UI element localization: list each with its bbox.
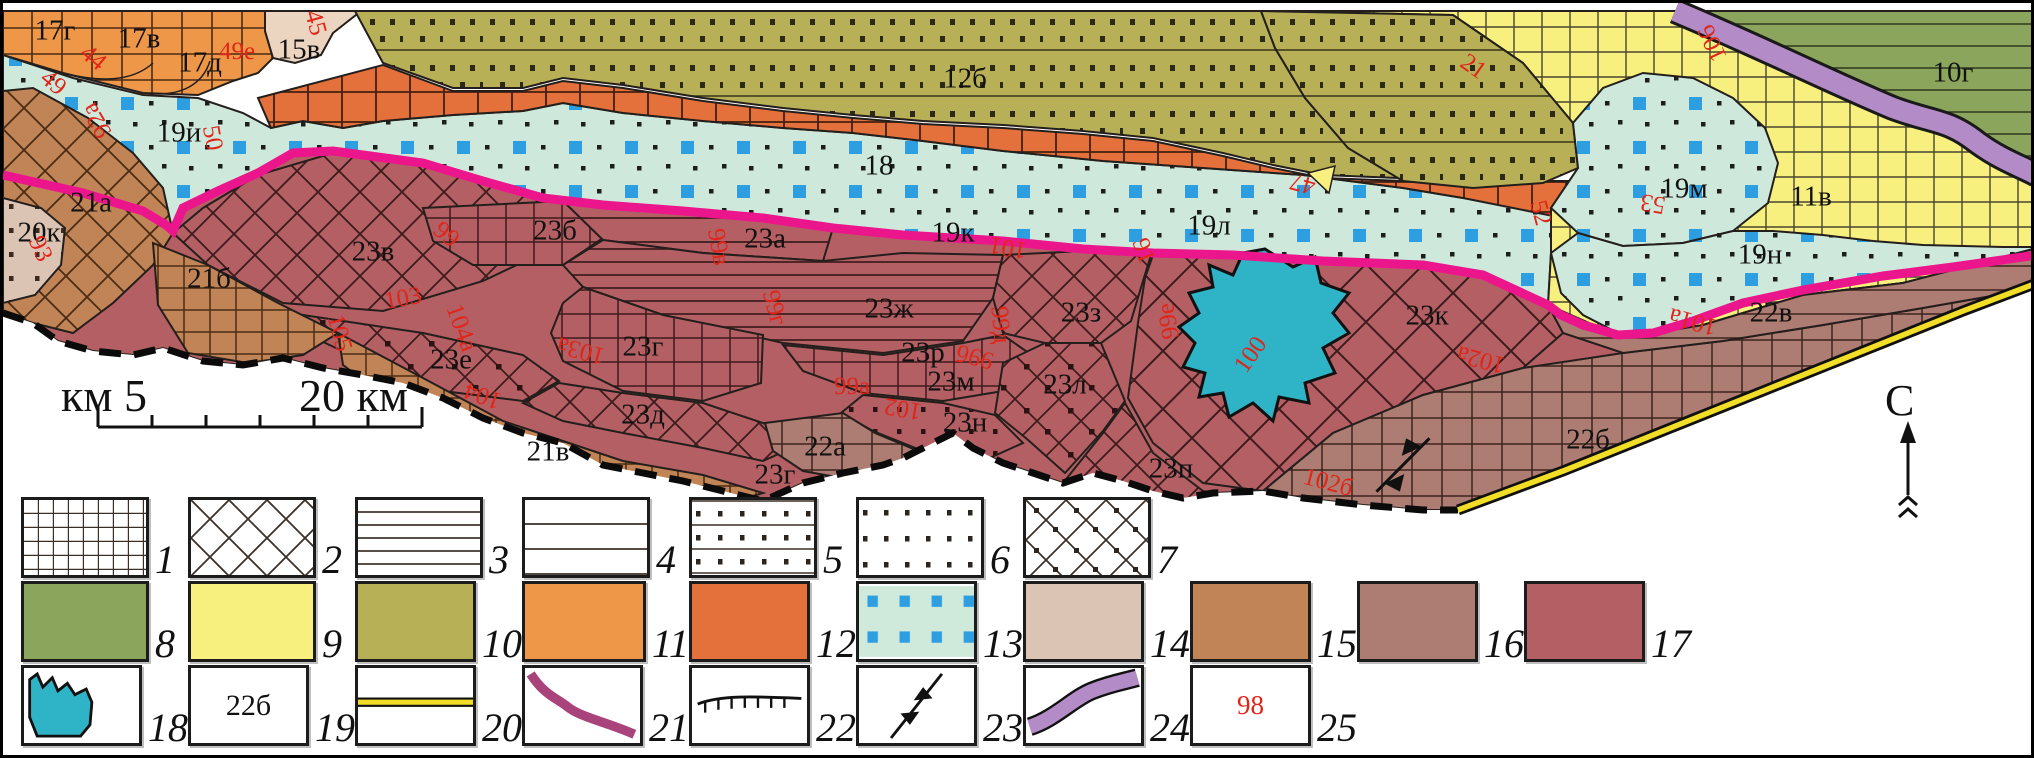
geological-map-figure: км 5 20 км С 17г17в17д15в19и21а20к21б23в…: [0, 0, 2034, 758]
north-label: С: [1885, 376, 1914, 425]
region-15v: [265, 11, 361, 63]
map-canvas: км 5 20 км С: [3, 3, 2034, 758]
scale-right-label: 20 км: [299, 370, 408, 421]
scale-left-label: км 5: [61, 370, 147, 421]
